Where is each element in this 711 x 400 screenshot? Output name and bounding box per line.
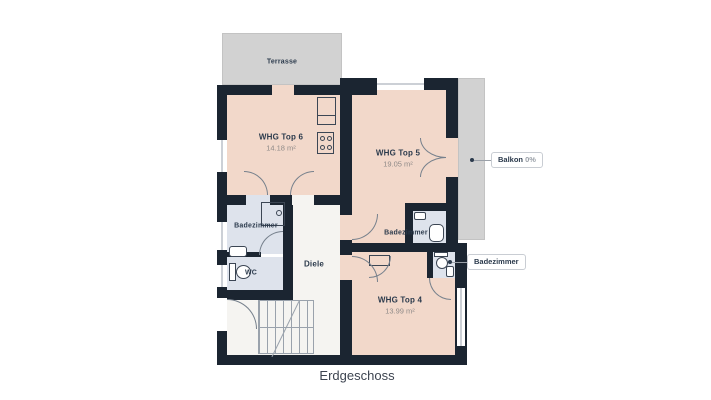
hall-floor (293, 195, 340, 305)
balkon-chip-label: Balkon (498, 155, 523, 164)
wall (424, 78, 458, 90)
floor-plan: Terrasse WHG Top 6 14.18 m² WHG Top 5 19… (0, 0, 711, 400)
balkon-chip-value: 0% (525, 155, 536, 164)
apartment-top5-name: WHG Top 5 (376, 149, 420, 158)
window (217, 140, 227, 172)
apartment-top4-name: WHG Top 4 (378, 296, 422, 305)
apartment-top6-name: WHG Top 6 (259, 133, 303, 142)
wall (446, 90, 458, 138)
door-opening (272, 85, 294, 95)
wall (340, 85, 352, 195)
door-opening (340, 255, 352, 280)
wall (294, 85, 345, 95)
entry-door-opening (217, 298, 227, 331)
door-opening (446, 138, 458, 177)
diele-label: Diele (304, 260, 324, 269)
sink-icon (446, 266, 454, 277)
window (217, 265, 227, 287)
balkon-chip[interactable]: Balkon 0% (491, 152, 543, 168)
apartment-top6-area: 14.18 m² (266, 144, 296, 153)
badezimmer-left-label: Badezimmer (234, 223, 278, 230)
window (457, 288, 465, 346)
window (377, 78, 424, 90)
badezimmer-chip[interactable]: Badezimmer (467, 254, 526, 270)
sink-icon (414, 212, 426, 220)
badezimmer-mid-label: Badezimmer (384, 230, 428, 237)
floor-title: Erdgeschoss (319, 368, 394, 383)
callout-line (474, 160, 491, 161)
apartment-top4-area: 13.99 m² (385, 307, 415, 316)
staircase (258, 300, 314, 354)
window (217, 222, 227, 250)
terrace-label: Terrasse (267, 59, 297, 66)
kitchen-cabinet-icon (317, 97, 336, 125)
wall (352, 243, 455, 252)
wc-label: WC (245, 270, 257, 277)
wall (427, 252, 433, 278)
sink-icon (229, 246, 247, 257)
wall (405, 203, 413, 243)
bathtub-icon (429, 224, 444, 242)
badezimmer-chip-label: Badezimmer (474, 257, 519, 266)
stove-icon (317, 132, 334, 154)
door-opening (340, 215, 352, 240)
toilet-tank-icon (229, 263, 236, 281)
callout-line (452, 262, 467, 263)
wall (227, 290, 293, 300)
apartment-top5-area: 19.05 m² (383, 160, 413, 169)
door-opening (292, 195, 314, 205)
